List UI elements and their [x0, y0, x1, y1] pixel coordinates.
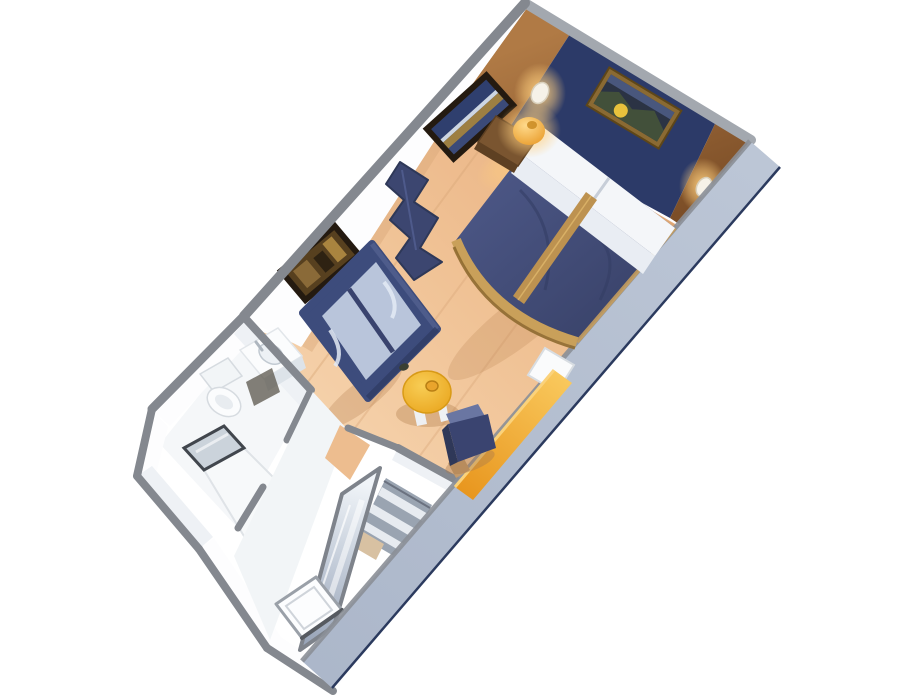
- stateroom-scene: cruise ship stateroom 3D floor plan: [0, 0, 900, 697]
- table-lamp: table-lamp: [497, 102, 561, 158]
- cabin-floorplan-image: cruise ship stateroom 3D floor plan: [0, 0, 900, 697]
- table-cup: [426, 381, 438, 391]
